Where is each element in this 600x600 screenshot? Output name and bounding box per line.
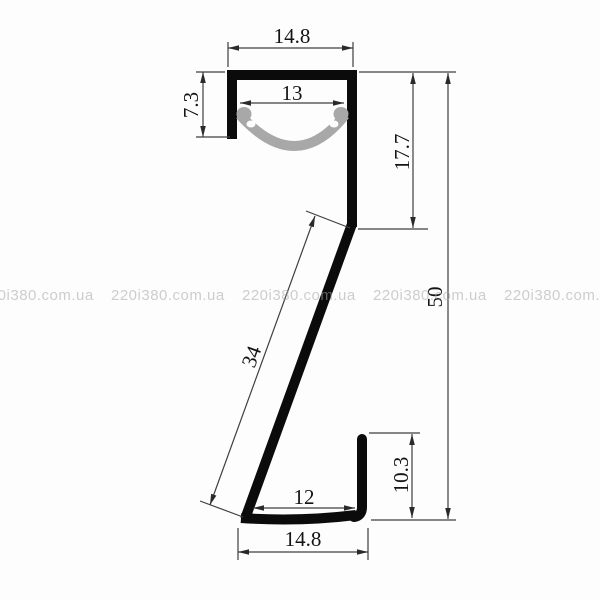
arrow (409, 434, 415, 445)
lens-cover-arc (240, 115, 345, 146)
arrow (409, 507, 415, 518)
dim-label-bottom-inner-width: 12 (294, 485, 315, 509)
diffuser-lens (237, 107, 349, 146)
arrow (309, 215, 318, 227)
lens-notch-right (330, 121, 339, 128)
dim-label-top-channel-height: 7.3 (179, 92, 203, 118)
dim-label-bottom-hook-height: 10.3 (389, 457, 413, 494)
arrow (344, 505, 355, 511)
dim-label-right-upper-height: 17.7 (390, 134, 414, 171)
arrow (200, 126, 206, 137)
arrow (445, 73, 451, 84)
arrow (238, 549, 249, 555)
drawing-canvas: 14.8 13 7.3 17.7 50 34 12 10.3 14.8 220i… (0, 0, 600, 600)
arrow (410, 73, 416, 84)
dim-label-overall-height: 50 (423, 287, 447, 308)
dim-label-diagonal-length: 34 (237, 342, 267, 370)
arrow (200, 72, 206, 83)
dim-label-bottom-outer-width: 14.8 (285, 527, 322, 551)
arrow (240, 100, 251, 106)
profile-bottom-foot (241, 515, 356, 519)
profile-bottom-hook (354, 439, 362, 517)
arrow (357, 549, 368, 555)
arrow (410, 217, 416, 228)
arrow (342, 45, 353, 51)
dim-label-top-inner-width: 13 (282, 81, 303, 105)
arrow (333, 100, 344, 106)
profile-cross-section-drawing: 14.8 13 7.3 17.7 50 34 12 10.3 14.8 (0, 0, 600, 600)
dim-label-top-outer-width: 14.8 (274, 24, 311, 48)
profile-diagonal-wall (245, 224, 352, 519)
arrow (445, 508, 451, 519)
lens-notch-left (247, 121, 256, 128)
arrow (228, 45, 239, 51)
ext-diagonal-bottom (200, 501, 243, 517)
